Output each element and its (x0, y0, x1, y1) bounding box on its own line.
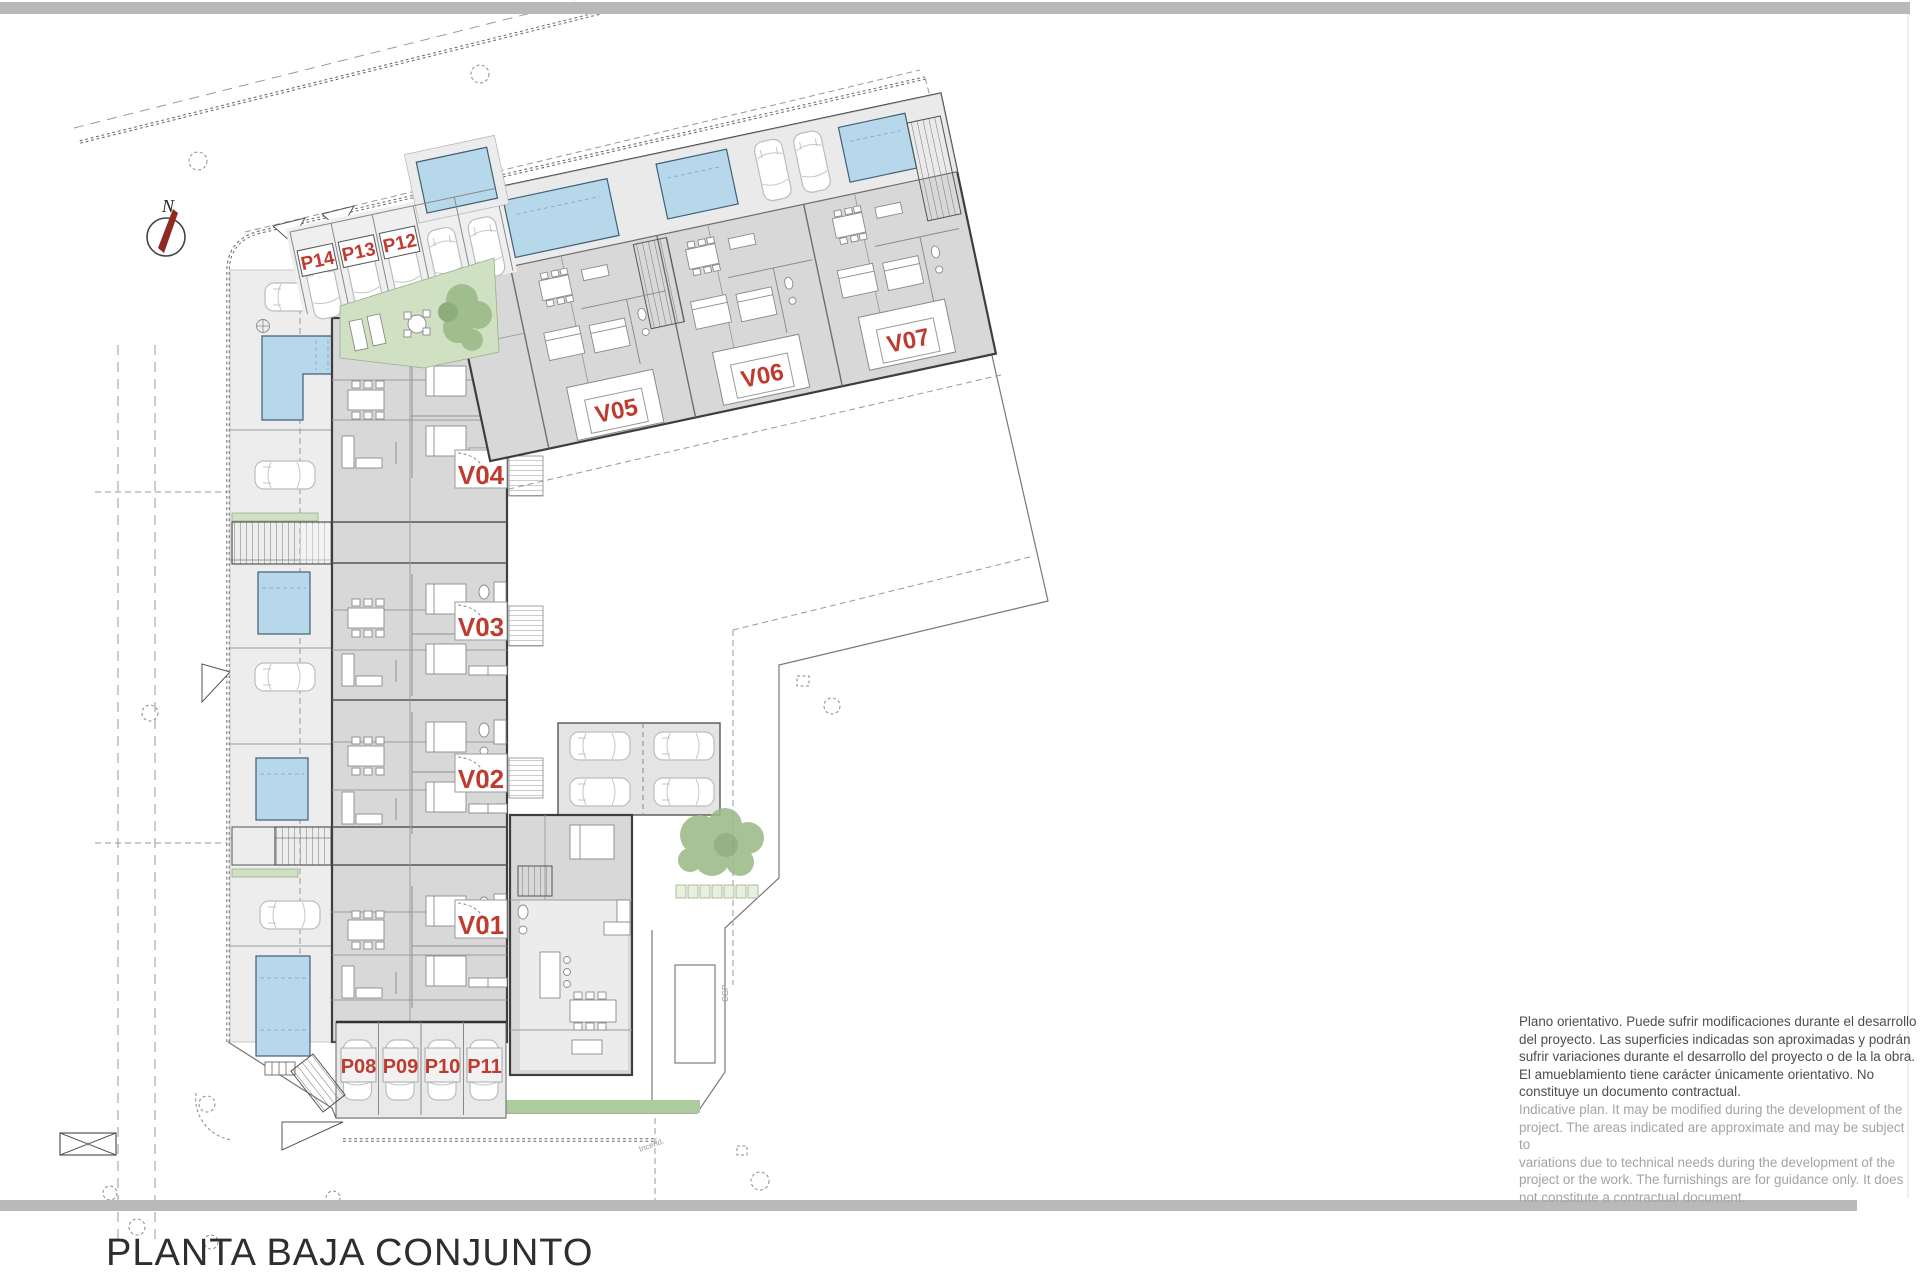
compass-north-label: N (161, 196, 175, 216)
clubhouse-stair (518, 866, 552, 896)
northeast-wing-building: V05 V06 V07 (435, 93, 996, 461)
culvert-symbol (60, 1133, 116, 1155)
south-parking-row: P08 P09 P10 P11 (336, 1022, 506, 1118)
villa-label-v04-text: V04 (458, 460, 505, 490)
disclaimer-en-line: project or the work. The furnishings are… (1519, 1171, 1919, 1189)
villa-label-v02-text: V02 (458, 764, 504, 794)
disclaimer-es-line: El amueblamiento tiene carácter únicamen… (1519, 1066, 1919, 1084)
sheet-top-bar (0, 2, 1910, 14)
parking-label-p10: P10 (425, 1048, 461, 1082)
parking-label-p08-text: P08 (341, 1056, 377, 1078)
parking-label-p10-text: P10 (425, 1056, 461, 1078)
north-compass: N (147, 196, 185, 256)
floor-plan-sheet: V04 V03 V02 V01 (0, 0, 1920, 1280)
parking-label-p08: P08 (341, 1048, 377, 1082)
villa-label-v03-text: V03 (458, 612, 504, 642)
villa-label-v01-text: V01 (458, 910, 504, 940)
villa-label-v01: V01 (455, 900, 507, 940)
page-title: PLANTA BAJA CONJUNTO (106, 1232, 593, 1275)
disclaimer-es-line: sufrir variaciones durante el desarrollo… (1519, 1048, 1919, 1066)
west-terrace-strip (230, 270, 343, 1056)
disclaimer-en-line: Indicative plan. It may be modified duri… (1519, 1101, 1919, 1119)
disclaimer-en-line: variations due to technical needs during… (1519, 1154, 1919, 1172)
parking-label-p11: P11 (467, 1048, 502, 1082)
villa-label-v02: V02 (455, 754, 507, 794)
green-strip-south (505, 1100, 700, 1113)
disclaimer-en-line: project. The areas indicated are approxi… (1519, 1119, 1919, 1154)
pool-v01 (256, 956, 310, 1056)
disclaimer-block: Plano orientativo. Puede sufrir modifica… (1519, 1013, 1919, 1207)
pool-v03 (258, 572, 310, 634)
disclaimer-es-line: del proyecto. Las superficies indicadas … (1519, 1031, 1919, 1049)
pergola (675, 965, 715, 1063)
villa-label-v03: V03 (455, 602, 507, 642)
parking-label-p09-text: P09 (383, 1056, 419, 1078)
disclaimer-en-line: not constitute a contractual document. (1519, 1189, 1919, 1207)
parking-label-p09: P09 (383, 1048, 419, 1082)
cgp-annotation: CGP (721, 985, 730, 1002)
pool-v02 (256, 758, 308, 820)
umbrella-icon (257, 320, 270, 333)
disclaimer-es-line: Plano orientativo. Puede sufrir modifica… (1519, 1013, 1919, 1031)
access-ramp (265, 1054, 345, 1112)
parking-label-p11-text: P11 (467, 1056, 501, 1078)
disclaimer-es-line: constituye un documento contractual. (1519, 1083, 1919, 1101)
